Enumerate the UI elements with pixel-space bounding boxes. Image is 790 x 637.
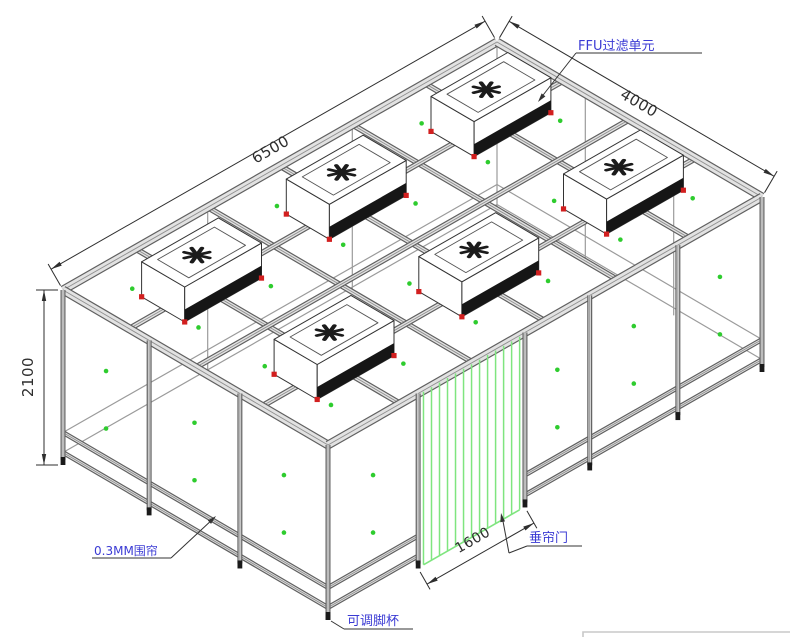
label-ffu-unit: FFU过滤单元 [536,39,702,103]
svg-text:FFU过滤单元: FFU过滤单元 [578,39,654,54]
drawing-canvas: 2100650040001600FFU过滤单元0.3MM围帘垂帘门可调脚杯 [0,0,790,637]
svg-text:垂帘门: 垂帘门 [529,530,568,546]
dimension-door-width: 1600 [420,511,537,589]
label-foot-cup: 可调脚杯 [331,613,413,629]
svg-text:0.3MM围帘: 0.3MM围帘 [94,543,158,558]
label-curtain: 0.3MM围帘 [92,514,218,558]
svg-text:2100: 2100 [19,357,37,397]
clean-booth-isometric-drawing: 2100650040001600FFU过滤单元0.3MM围帘垂帘门可调脚杯 [0,0,790,637]
svg-text:可调脚杯: 可调脚杯 [347,613,399,629]
label-curtain-door: 垂帘门 [499,513,582,553]
svg-text:1600: 1600 [453,524,494,557]
sheet-border [583,632,790,637]
dimension-height: 2100 [19,290,58,465]
